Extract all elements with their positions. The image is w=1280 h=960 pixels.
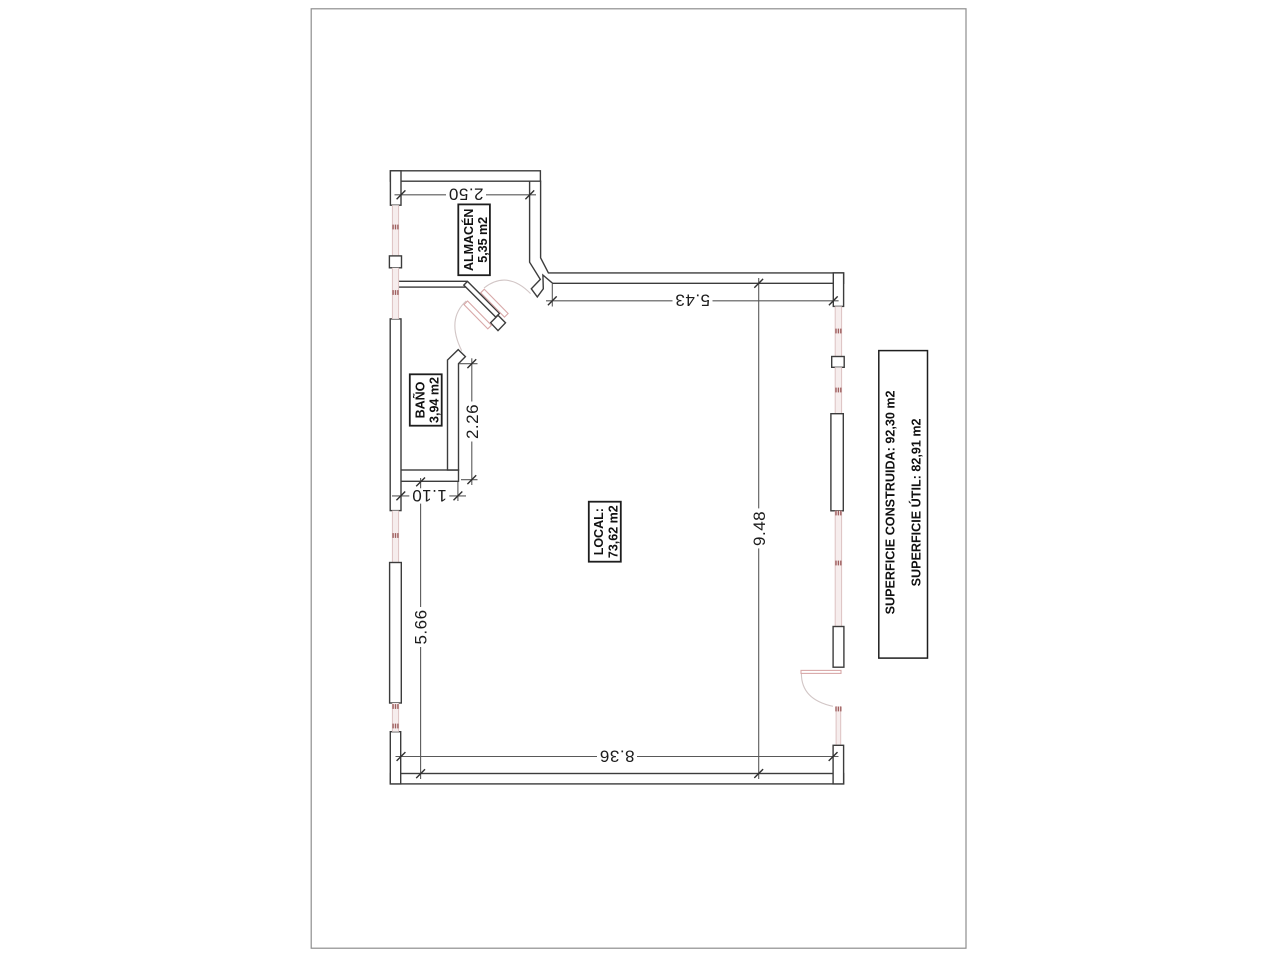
svg-text:3,94 m2: 3,94 m2 <box>428 377 442 423</box>
svg-text:ALMACÉN: ALMACÉN <box>461 209 476 272</box>
svg-text:5,35 m2: 5,35 m2 <box>476 217 490 263</box>
svg-text:LOCAL:: LOCAL: <box>592 508 606 555</box>
svg-text:5.43: 5.43 <box>675 291 710 310</box>
svg-text:SUPERFICIE ÚTIL: 82,91 m2: SUPERFICIE ÚTIL: 82,91 m2 <box>909 418 924 586</box>
svg-text:BAÑO: BAÑO <box>412 381 427 418</box>
svg-text:9.48: 9.48 <box>750 511 769 546</box>
svg-text:2.26: 2.26 <box>463 404 482 439</box>
svg-text:73,62 m2: 73,62 m2 <box>606 505 620 558</box>
svg-text:1.10: 1.10 <box>412 486 447 505</box>
svg-text:2.50: 2.50 <box>448 185 483 204</box>
svg-text:8.36: 8.36 <box>599 746 634 765</box>
svg-text:SUPERFICIE CONSTRUIDA: 92,30 m: SUPERFICIE CONSTRUIDA: 92,30 m2 <box>883 390 897 614</box>
svg-text:5.66: 5.66 <box>412 609 431 644</box>
